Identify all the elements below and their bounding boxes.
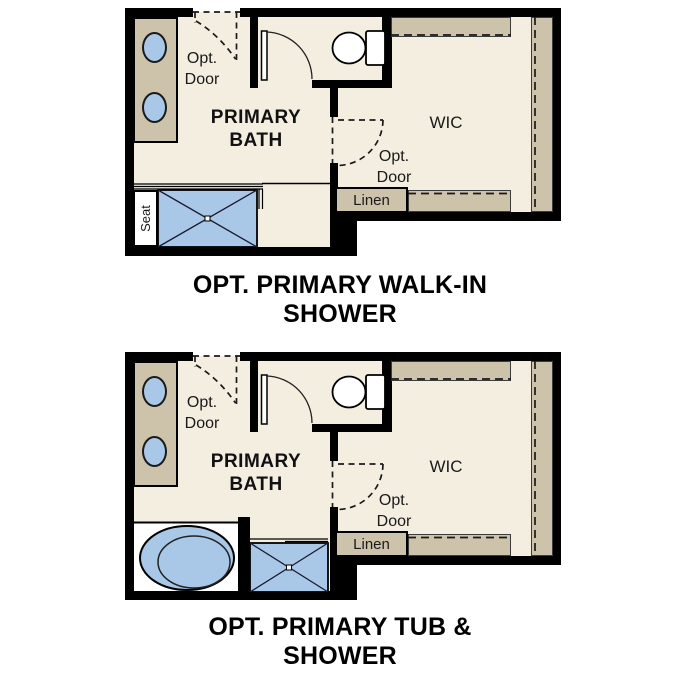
- plan-walk-in-shower: Linen: [125, 8, 561, 256]
- door-swing-arc: [267, 376, 312, 423]
- opt-door-label: Opt. Door: [370, 146, 418, 188]
- opt-door-label: Opt. Door: [178, 48, 226, 90]
- door-leaf: [262, 31, 268, 80]
- opt-door-label: Opt. Door: [370, 490, 418, 532]
- door-leaf: [262, 375, 268, 424]
- plan-title: OPT. PRIMARY TUB & SHOWER: [110, 613, 570, 671]
- shower-drain: [287, 565, 292, 570]
- shower: [250, 539, 328, 592]
- plan-title: OPT. PRIMARY WALK-IN SHOWER: [110, 271, 570, 329]
- toilet: [333, 31, 386, 65]
- plan-tub-and-shower: Linen: [125, 352, 561, 600]
- shower-drain: [205, 216, 210, 221]
- door-swing-arc: [267, 32, 312, 79]
- floor-plan-sheet: Linen: [0, 0, 687, 687]
- bathtub: [140, 526, 234, 590]
- opt-door-label: Opt. Door: [178, 392, 226, 434]
- wic-label: WIC: [411, 113, 481, 133]
- seat-label: Seat: [133, 190, 158, 247]
- toilet: [333, 375, 386, 409]
- room-label-primary-bath: PRIMARY BATH: [181, 106, 331, 152]
- walk-in-shower: [133, 184, 330, 248]
- wic-label: WIC: [411, 457, 481, 477]
- room-label-primary-bath: PRIMARY BATH: [181, 450, 331, 496]
